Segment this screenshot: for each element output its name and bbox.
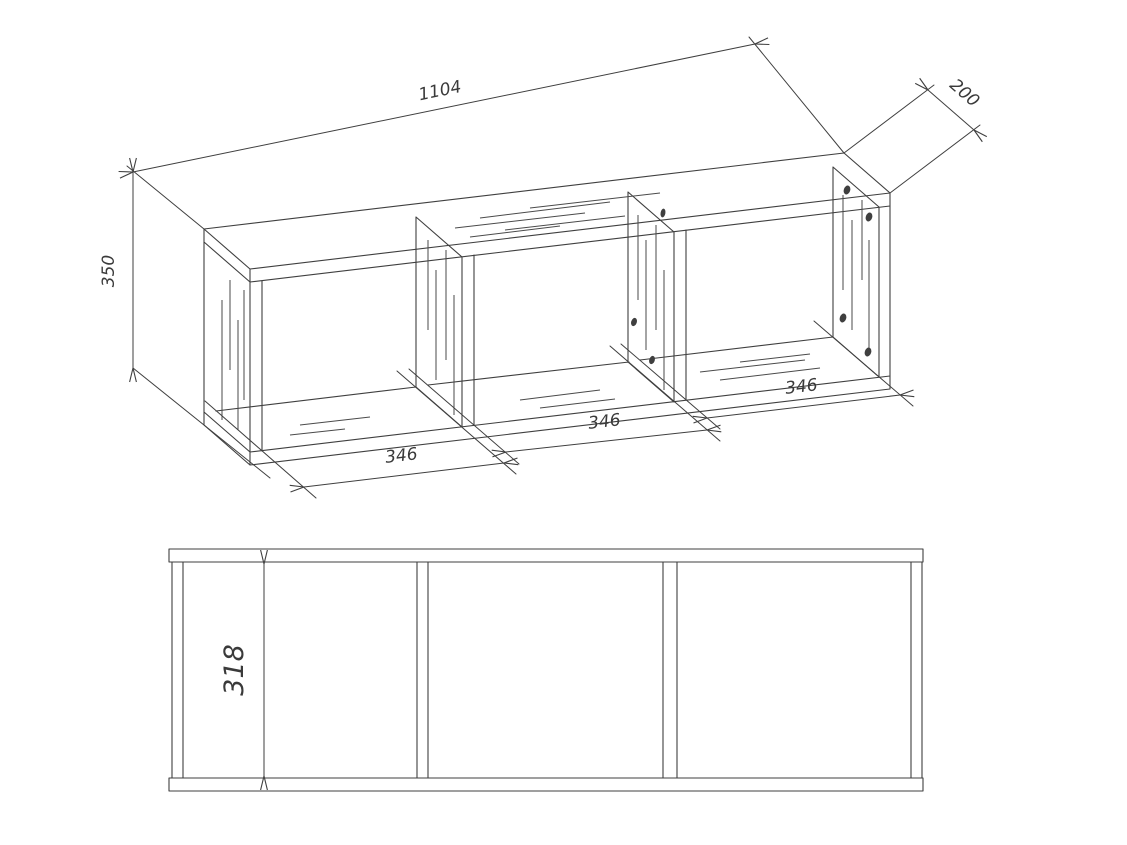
- technical-drawing: 1104 200 350 346 346: [0, 0, 1127, 845]
- dimension-total-width: 1104: [127, 37, 844, 229]
- dimension-label-compartment-1: 346: [384, 444, 419, 468]
- isometric-view: 1104 200 350 346 346: [99, 37, 983, 498]
- front-view-outline: [169, 549, 923, 791]
- screw-hole-icon: [660, 208, 666, 217]
- dimension-label-total-width: 1104: [417, 77, 463, 105]
- dimension-interior-height: 318: [219, 564, 264, 776]
- dimension-compartment-1: 346: [205, 371, 516, 498]
- screw-hole-icon: [839, 313, 848, 324]
- screw-holes: [630, 185, 873, 365]
- dimension-label-depth: 200: [945, 75, 983, 111]
- front-view: 318: [169, 549, 923, 791]
- screw-hole-icon: [865, 212, 874, 223]
- screw-hole-icon: [630, 317, 638, 327]
- dimension-label-compartment-2: 346: [587, 410, 622, 434]
- screw-hole-icon: [843, 185, 852, 196]
- screw-hole-icon: [648, 355, 656, 365]
- drawing-canvas: 1104 200 350 346 346: [0, 0, 1127, 845]
- dimension-label-total-height: 350: [99, 255, 119, 287]
- dimension-depth: 200: [844, 75, 983, 193]
- dimension-label-interior-height: 318: [219, 644, 250, 696]
- carcass-outline: [204, 167, 890, 465]
- dimension-label-compartment-3: 346: [784, 375, 819, 399]
- screw-hole-icon: [864, 347, 873, 358]
